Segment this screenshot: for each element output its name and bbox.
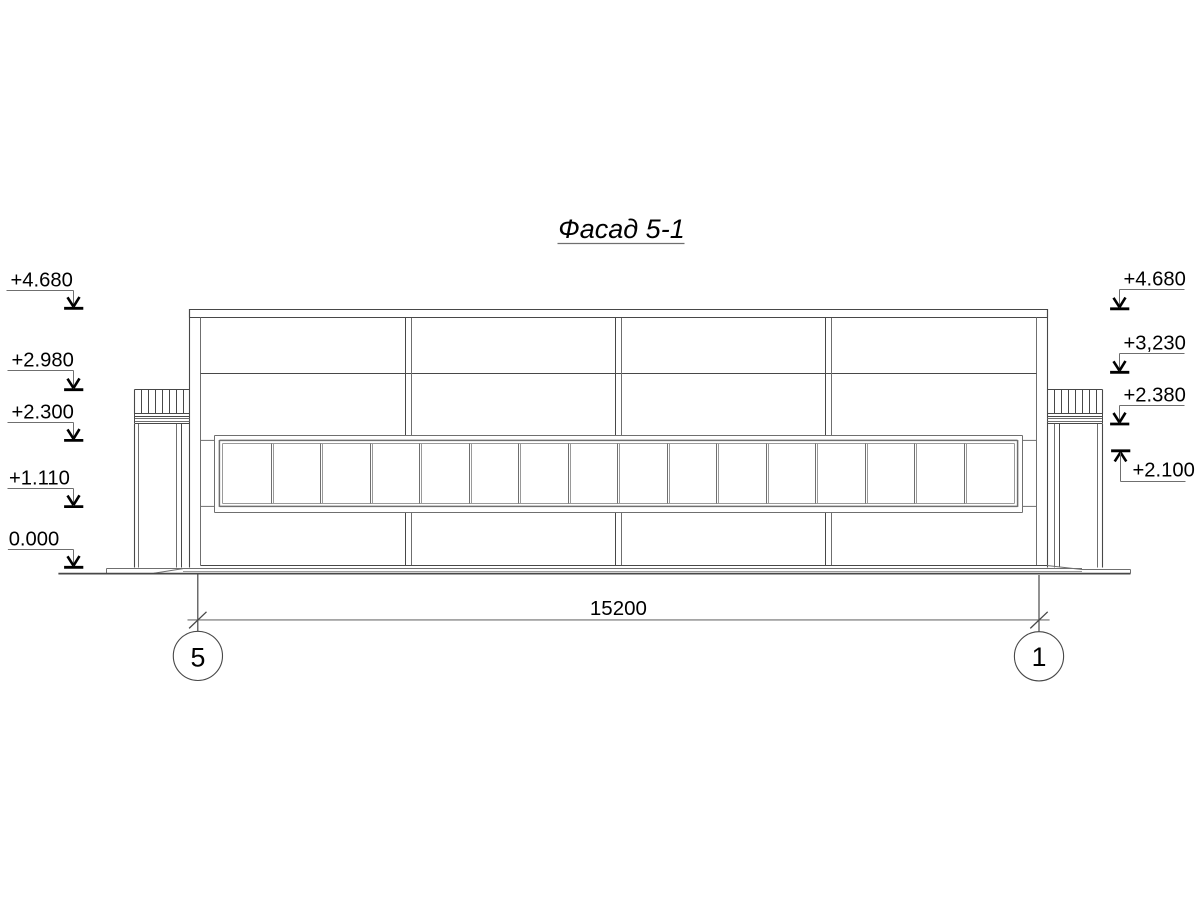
svg-text:+2.300: +2.300 bbox=[12, 401, 74, 423]
svg-text:+1.110: +1.110 bbox=[9, 467, 70, 489]
svg-text:+4.680: +4.680 bbox=[11, 269, 73, 291]
svg-text:15200: 15200 bbox=[590, 597, 647, 620]
svg-text:0.000: 0.000 bbox=[9, 528, 60, 550]
svg-text:+2.100: +2.100 bbox=[1133, 460, 1195, 482]
svg-text:1: 1 bbox=[1032, 642, 1047, 672]
svg-text:+3,230: +3,230 bbox=[1124, 333, 1186, 355]
svg-text:+4.680: +4.680 bbox=[1124, 269, 1186, 291]
svg-text:+2.380: +2.380 bbox=[1124, 384, 1186, 406]
svg-text:Фасад 5-1: Фасад 5-1 bbox=[558, 214, 684, 244]
svg-text:5: 5 bbox=[190, 642, 205, 672]
svg-text:+2.980: +2.980 bbox=[12, 350, 74, 372]
